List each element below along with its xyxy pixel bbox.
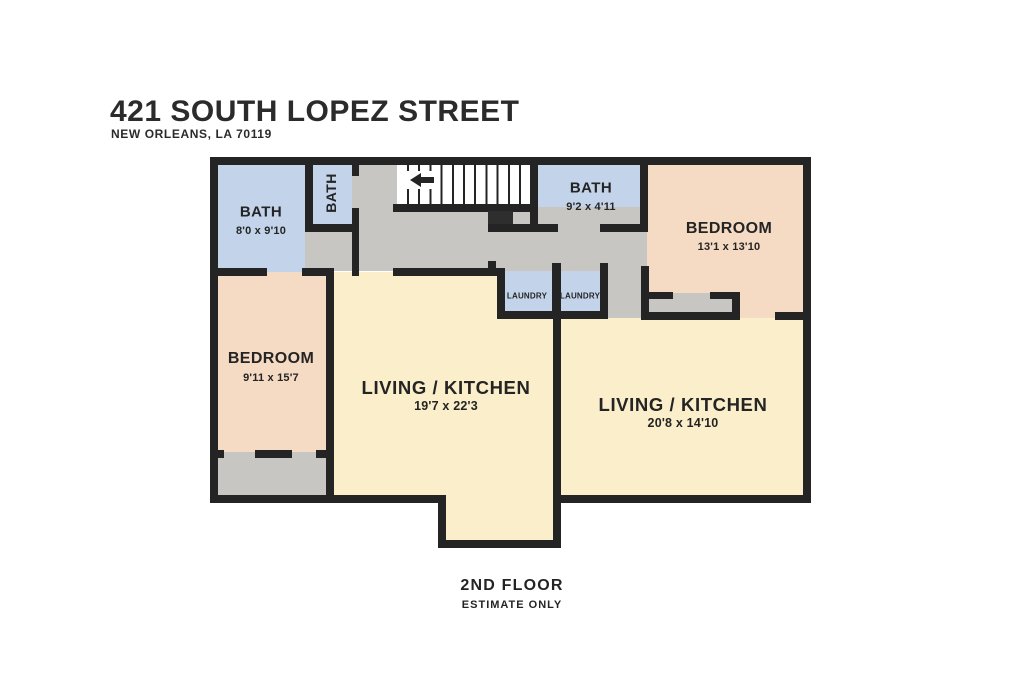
wall-outer-right [803, 157, 811, 503]
room-dims-living-left: 19'7 x 22'3 [414, 399, 478, 413]
wall-closet-left-nub-b [316, 450, 330, 458]
page-title: 421 SOUTH LOPEZ STREET [110, 95, 519, 129]
wall-laundry-bottom [497, 311, 608, 319]
closet-bedroom-left-floor [214, 452, 330, 500]
room-label-laundry-right: LAUNDRY [560, 292, 600, 301]
wall-outer-top [210, 157, 811, 165]
wall-bottom-right [553, 495, 811, 503]
wall-bath-bedroom-sep [640, 157, 648, 232]
wall-closet-right-bottom [641, 312, 740, 320]
room-dims-bath-top: 9'2 x 4'11 [566, 201, 615, 213]
room-label-bath-left: BATH [240, 204, 282, 221]
room-label-bedroom-right: BEDROOM [686, 220, 772, 238]
room-dims-bedroom-right: 13'1 x 13'10 [698, 241, 761, 253]
wall-bath-small-right-nub [352, 157, 359, 176]
room-label-living-right: LIVING / KITCHEN [599, 394, 768, 416]
wall-divider-c [393, 268, 497, 276]
wall-bedroom-living [326, 268, 334, 503]
wall-closet-right-top1 [649, 292, 673, 299]
wall-bath-small-right [352, 208, 359, 276]
room-dims-bedroom-left: 9'11 x 15'7 [243, 372, 299, 384]
wall-bedroom-right-bottom [775, 312, 811, 320]
room-label-bath-top: BATH [570, 180, 612, 197]
wall-closet-left-mid [255, 450, 292, 458]
wall-stairs-stub [488, 224, 558, 232]
room-label-bedroom-left: BEDROOM [228, 350, 314, 368]
wall-divider-a [210, 268, 267, 276]
room-label-laundry-left: LAUNDRY [507, 292, 547, 301]
wall-bath-separator [305, 157, 313, 232]
wall-closet-left-nub-a [214, 450, 224, 458]
room-label-living-left: LIVING / KITCHEN [362, 377, 531, 399]
wall-stairs-right [530, 157, 538, 232]
hallway-bath-nook [305, 232, 356, 271]
wall-bath-small-bottom [305, 224, 359, 232]
room-dims-bath-left: 8'0 x 9'10 [236, 225, 286, 237]
wall-divider-c-tick [488, 261, 496, 270]
room-label-bath-small: BATH [323, 173, 339, 212]
room-dims-living-right: 20'8 x 14'10 [648, 416, 719, 430]
wall-unit-divider [553, 318, 561, 548]
page-subtitle: NEW ORLEANS, LA 70119 [111, 127, 272, 141]
room-living-left-bump-floor [442, 495, 557, 545]
floor-plan-page: 421 SOUTH LOPEZ STREET NEW ORLEANS, LA 7… [0, 0, 1024, 682]
wall-stairs-bottom [393, 204, 537, 212]
stairs-arrow-icon [407, 171, 437, 189]
estimate-note: ESTIMATE ONLY [462, 599, 562, 611]
floor-label: 2ND FLOOR [460, 577, 563, 595]
wall-bump-bottom [438, 540, 561, 548]
